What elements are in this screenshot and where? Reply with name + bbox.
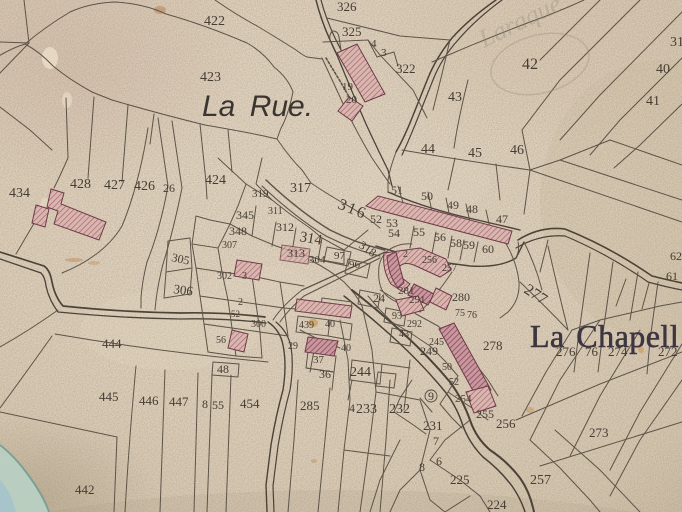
svg-text:257: 257 [442,263,457,274]
svg-text:93: 93 [392,311,402,322]
svg-text:52: 52 [370,212,382,226]
svg-text:326: 326 [337,0,357,14]
svg-text:60: 60 [482,242,494,256]
svg-text:36: 36 [319,367,331,381]
svg-text:31: 31 [670,35,682,50]
svg-text:446: 446 [139,393,159,408]
svg-text:427: 427 [104,178,125,193]
svg-text:244: 244 [350,365,371,380]
svg-text:75: 75 [455,308,465,319]
svg-text:322: 322 [396,61,416,76]
svg-text:42: 42 [522,56,538,73]
svg-text:273: 273 [589,425,609,440]
svg-text:445: 445 [99,389,119,404]
svg-text:41: 41 [646,94,660,109]
svg-text:20: 20 [346,94,358,106]
svg-text:325: 325 [342,24,362,39]
svg-text:317: 317 [290,181,311,196]
svg-text:439: 439 [299,320,314,331]
svg-text:256: 256 [422,255,437,266]
svg-text:285: 285 [300,398,320,413]
svg-text:300: 300 [251,319,266,330]
svg-text:45: 45 [468,146,482,161]
svg-text:232: 232 [389,402,410,417]
svg-text:49: 49 [447,198,459,212]
svg-text:47: 47 [496,212,508,226]
svg-text:8: 8 [202,397,208,411]
svg-text:97: 97 [334,250,346,262]
svg-text:249: 249 [420,344,438,358]
svg-text:280: 280 [452,290,470,304]
svg-text:54: 54 [388,226,400,240]
svg-text:428: 428 [70,177,91,192]
svg-text:224: 224 [487,497,507,512]
svg-text:424: 424 [205,173,226,188]
svg-text:233: 233 [356,402,377,417]
svg-text:312: 312 [276,220,294,234]
svg-text:292: 292 [407,319,422,330]
svg-text:56: 56 [216,335,226,346]
svg-text:4: 4 [349,401,355,415]
svg-text:52: 52 [449,377,459,388]
svg-text:43: 43 [399,329,409,340]
svg-text:254: 254 [455,393,472,405]
svg-text:La Rue.: La Rue. [202,90,313,123]
svg-text:278: 278 [483,338,503,353]
svg-text:43: 43 [448,90,462,105]
svg-text:29: 29 [288,341,298,352]
svg-text:9: 9 [428,389,434,403]
svg-text:50: 50 [442,362,452,373]
svg-text:345: 345 [236,208,254,222]
svg-text:281: 281 [398,285,415,297]
svg-text:48: 48 [217,362,229,376]
svg-text:257: 257 [530,473,551,488]
svg-text:6: 6 [436,454,442,468]
svg-text:304: 304 [309,254,326,266]
svg-text:50: 50 [421,189,433,203]
svg-text:40: 40 [656,62,670,77]
svg-text:422: 422 [204,14,225,29]
svg-text:55: 55 [212,398,224,412]
svg-text:3: 3 [381,47,387,59]
svg-text:46: 46 [510,143,524,158]
svg-text:423: 423 [200,70,221,85]
svg-text:348: 348 [229,224,247,238]
svg-text:44: 44 [421,142,435,157]
svg-text:56: 56 [434,230,446,244]
svg-text:2: 2 [403,249,408,260]
svg-text:434: 434 [9,186,30,201]
svg-text:3: 3 [242,271,247,282]
svg-text:306: 306 [173,281,195,299]
svg-text:442: 442 [75,482,95,497]
svg-text:37: 37 [313,354,325,366]
svg-text:426: 426 [134,179,155,194]
svg-text:24: 24 [373,291,385,305]
svg-text:52: 52 [231,309,240,319]
svg-text:313: 313 [287,246,305,260]
svg-text:La Chapell: La Chapell [530,318,679,354]
svg-text:2: 2 [238,297,243,308]
svg-text:255: 255 [476,407,494,421]
svg-text:311: 311 [268,206,283,217]
svg-text:55: 55 [413,225,425,239]
svg-text:51: 51 [391,183,403,197]
svg-text:61: 61 [666,269,678,283]
svg-text:7: 7 [433,434,439,448]
svg-text:4: 4 [371,38,377,50]
svg-text:40: 40 [341,343,351,354]
svg-text:307: 307 [222,240,237,251]
svg-text:26: 26 [163,181,175,195]
svg-text:76: 76 [467,310,477,321]
svg-text:62: 62 [670,249,682,263]
svg-text:231: 231 [423,418,443,433]
svg-text:8: 8 [419,460,425,474]
svg-text:454: 454 [240,396,260,411]
svg-text:40: 40 [325,319,335,330]
svg-text:19: 19 [342,81,354,93]
svg-text:96: 96 [349,259,361,271]
svg-text:48: 48 [466,202,478,216]
svg-text:444: 444 [102,336,122,351]
svg-text:58: 58 [450,236,462,250]
svg-text:319: 319 [252,188,269,200]
svg-text:302: 302 [217,271,232,282]
svg-text:256: 256 [496,416,516,431]
svg-text:225: 225 [450,472,470,487]
svg-text:447: 447 [169,394,189,409]
svg-text:59: 59 [463,238,475,252]
